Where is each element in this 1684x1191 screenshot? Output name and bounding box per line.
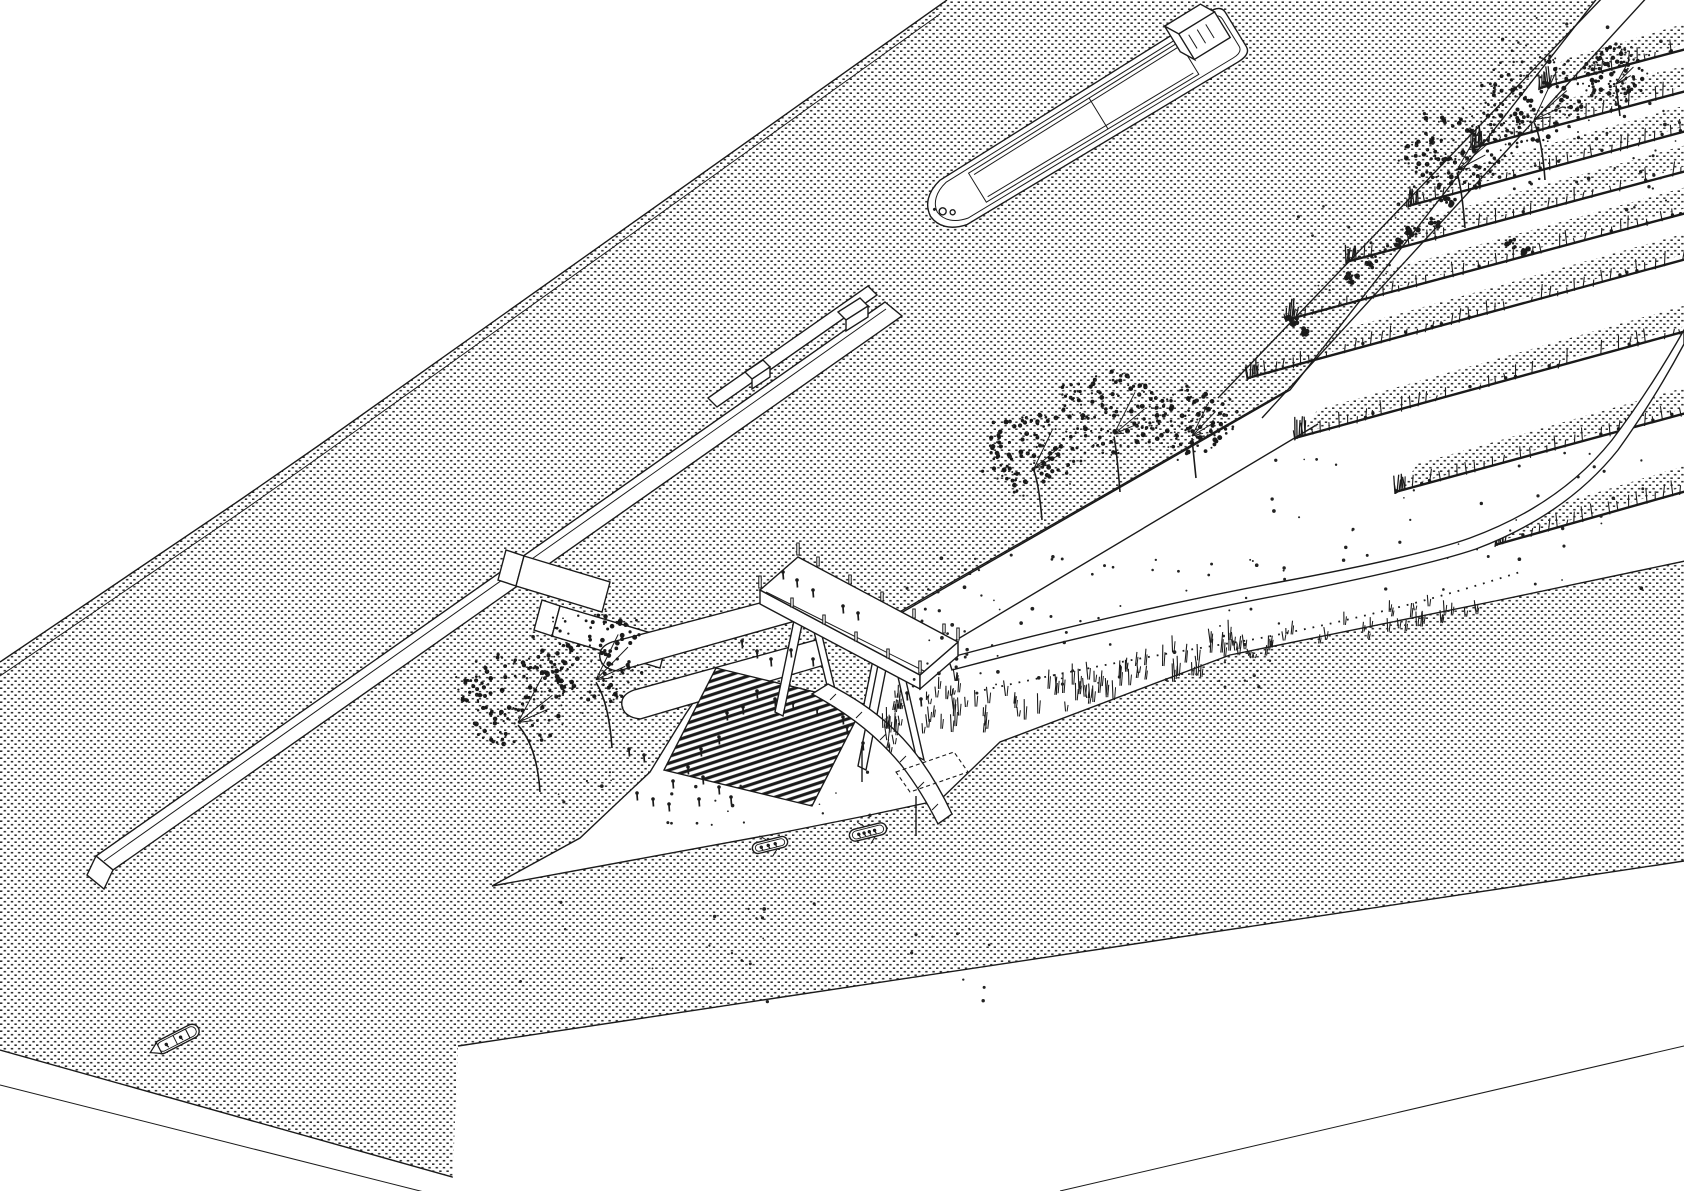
tree-canopy-dot <box>468 691 471 694</box>
tree-canopy-dot <box>1470 175 1472 177</box>
tree-canopy-dot <box>562 644 565 647</box>
tree-canopy-dot <box>1555 129 1558 132</box>
reed-end-clump <box>1354 246 1355 260</box>
tree-canopy-dot <box>560 666 564 670</box>
tree-canopy-dot <box>1424 132 1428 136</box>
reed-blade <box>1601 228 1602 236</box>
tree-canopy-dot <box>1189 425 1193 429</box>
reed-clump <box>1371 412 1374 415</box>
speck-dot <box>1652 154 1655 157</box>
tree-canopy-dot <box>1104 411 1107 414</box>
tree-canopy-dot <box>1483 139 1486 142</box>
platform-post <box>957 628 959 640</box>
tree-canopy-dot <box>1150 449 1152 451</box>
person-body <box>757 653 758 659</box>
tree-canopy-dot <box>1041 465 1044 468</box>
tree-canopy-dot <box>1489 170 1492 173</box>
grass-blade <box>1172 635 1173 652</box>
reed-end-clump <box>1355 246 1356 259</box>
tree-canopy-dot <box>1526 99 1530 103</box>
drawing-canvas <box>0 0 1684 1191</box>
tree-canopy-dot <box>1172 394 1174 396</box>
person-body <box>921 701 922 707</box>
speck-dot <box>1386 244 1389 247</box>
tree-canopy-dot <box>1207 434 1209 436</box>
tree-canopy-dot <box>1638 67 1641 70</box>
speck-dot <box>1458 543 1460 545</box>
tree-canopy-dot <box>1125 429 1130 434</box>
speck-dot <box>1384 248 1387 251</box>
tree-canopy-dot <box>1553 126 1555 128</box>
speck-dot <box>1632 78 1635 81</box>
tree-canopy-dot <box>540 705 544 709</box>
tree-canopy-dot <box>1214 439 1218 443</box>
tree-canopy-dot <box>628 641 632 645</box>
speck-dot <box>999 609 1001 611</box>
tree-canopy-dot <box>533 698 536 701</box>
tree-canopy-dot <box>1532 108 1536 112</box>
tree-canopy-dot <box>1101 442 1105 446</box>
tree-canopy-dot <box>1608 83 1610 85</box>
platform-post <box>943 624 945 633</box>
speck-dot <box>1592 85 1595 88</box>
platform-post <box>855 632 857 641</box>
speck-dot <box>1659 39 1663 43</box>
tree-canopy-dot <box>1221 402 1225 406</box>
speck-dot <box>963 585 967 589</box>
tree-canopy-dot <box>635 619 638 622</box>
tree-canopy-dot <box>1127 445 1130 448</box>
reed-clump <box>1627 343 1630 346</box>
speck-dot <box>983 986 986 989</box>
reed-blade <box>1539 524 1540 532</box>
tree-canopy-dot <box>999 464 1002 467</box>
reed-clump <box>1635 269 1638 272</box>
shrub-dot <box>1443 196 1448 201</box>
tree-canopy-dot <box>1519 123 1521 125</box>
tree-canopy-dot <box>503 720 505 722</box>
speck-dot <box>969 572 972 575</box>
tree-canopy-dot <box>548 719 551 722</box>
tree-canopy-dot <box>1048 433 1050 435</box>
person-head <box>686 765 690 769</box>
tree-canopy-dot <box>1122 373 1124 375</box>
tree-canopy-dot <box>1429 172 1433 176</box>
speck-dot <box>1657 72 1659 74</box>
tree-canopy-dot <box>628 667 630 669</box>
tree-canopy-dot <box>1067 414 1071 418</box>
tree-canopy-dot <box>1149 406 1151 408</box>
speck-dot <box>1228 609 1230 611</box>
tree-canopy-dot <box>1431 176 1434 179</box>
tree-canopy-dot <box>1493 123 1496 126</box>
speck-dot <box>868 814 871 817</box>
tree-canopy-dot <box>1212 410 1215 413</box>
person-head <box>701 775 705 779</box>
reed-blade <box>1567 288 1568 294</box>
tree-canopy-dot <box>1511 88 1514 91</box>
tree-canopy-dot <box>1615 59 1619 63</box>
tree-canopy-dot <box>1090 430 1092 432</box>
person-body <box>742 643 743 649</box>
speck-dot <box>1505 129 1509 133</box>
tree-canopy-dot <box>1177 459 1179 461</box>
tree-canopy-dot <box>1624 51 1626 53</box>
person-body <box>771 661 772 667</box>
tree-canopy-dot <box>1484 101 1486 103</box>
speck-dot <box>1588 119 1590 121</box>
person-head <box>811 588 815 592</box>
tree-canopy-dot <box>1136 435 1139 438</box>
tree-canopy-dot <box>1013 491 1016 494</box>
person-head <box>651 797 655 801</box>
tree-canopy-dot <box>1525 44 1527 46</box>
grass-blade <box>1197 644 1198 660</box>
speck-dot <box>1606 132 1609 135</box>
tree-canopy-dot <box>603 614 608 619</box>
reed-clump <box>1600 149 1603 152</box>
tree-canopy-dot <box>1059 444 1064 449</box>
tree-canopy-dot <box>1171 424 1174 427</box>
tree-canopy-dot <box>1529 120 1532 123</box>
reed-clump <box>1504 376 1507 379</box>
person-head <box>717 785 721 789</box>
tree-canopy-dot <box>509 719 511 721</box>
grass-blade <box>1464 607 1465 617</box>
tree-canopy-dot <box>1411 144 1413 146</box>
speck-dot <box>1010 554 1013 557</box>
speck-dot <box>1344 546 1347 549</box>
tree-canopy-dot <box>609 699 613 703</box>
speck-dot <box>1600 522 1602 524</box>
shrub-dot <box>1413 227 1416 230</box>
speck-dot <box>835 792 837 794</box>
tree-canopy-dot <box>1615 89 1619 93</box>
tree-canopy-dot <box>1061 408 1065 412</box>
tree-canopy-dot <box>1597 80 1600 83</box>
speck-dot <box>1563 452 1566 455</box>
person-body <box>793 705 794 711</box>
person-body <box>688 769 689 775</box>
tree-canopy-dot <box>1573 78 1575 80</box>
tree-canopy-dot <box>1136 418 1138 420</box>
tree-canopy-dot <box>1471 115 1473 117</box>
tree-canopy-dot <box>591 620 595 624</box>
speck-dot <box>743 821 745 823</box>
reed-clump <box>1440 322 1443 325</box>
tree-canopy-dot <box>998 430 1003 435</box>
reed-blade <box>1601 340 1602 354</box>
speck-dot <box>1385 273 1387 275</box>
speck-dot <box>1250 608 1253 611</box>
tree-canopy-dot <box>525 751 527 753</box>
tree-canopy-dot <box>1425 170 1428 173</box>
tree-canopy-dot <box>1111 441 1114 444</box>
tree-canopy-dot <box>563 685 566 688</box>
tree-canopy-dot <box>1179 443 1183 447</box>
speck-dot <box>1367 258 1369 260</box>
person-head <box>861 741 865 745</box>
tree-canopy-dot <box>489 712 493 716</box>
tree-canopy-dot <box>606 661 611 666</box>
shrub-dot <box>1433 221 1437 225</box>
tree-canopy-dot <box>1540 90 1544 94</box>
tree-canopy-dot <box>631 669 633 671</box>
speck-dot <box>1501 38 1504 41</box>
tree-canopy-dot <box>1151 427 1154 430</box>
tree-canopy-dot <box>992 421 996 425</box>
person-head <box>642 753 646 757</box>
platform-post <box>791 598 793 607</box>
speck-dot <box>1518 465 1521 468</box>
speck-dot <box>1347 226 1350 229</box>
tree-canopy-dot <box>1209 429 1213 433</box>
reed-clump <box>1428 479 1431 482</box>
tree-canopy-dot <box>1499 61 1502 64</box>
shrub-dot <box>1290 321 1295 326</box>
tree-canopy-dot <box>1453 160 1457 164</box>
tree-canopy-dot <box>1127 384 1129 386</box>
speck-dot <box>1218 680 1220 682</box>
speck-dot <box>912 685 915 688</box>
tree-canopy-dot <box>626 663 630 667</box>
tree-canopy-dot <box>1190 429 1194 433</box>
speck-dot <box>1051 555 1055 559</box>
reed-blade <box>1628 93 1629 106</box>
tree-canopy-dot <box>478 676 480 678</box>
tree-canopy-dot <box>1076 427 1079 430</box>
speck-dot <box>974 558 976 560</box>
grass-blade <box>1387 618 1388 632</box>
tree-canopy-dot <box>503 675 507 679</box>
tree-canopy-dot <box>1594 71 1597 74</box>
tree-canopy-dot <box>1491 129 1495 133</box>
tree-canopy-dot <box>1486 149 1489 152</box>
tree-canopy-dot <box>1459 117 1463 121</box>
tree-canopy-dot <box>1553 61 1555 63</box>
tree-canopy-dot <box>1523 133 1525 135</box>
tree-canopy-dot <box>522 675 525 678</box>
tree-canopy-dot <box>1487 104 1490 107</box>
tree-canopy-dot <box>1463 180 1466 183</box>
tree-canopy-dot <box>1056 468 1059 471</box>
tree-canopy-dot <box>1155 427 1157 429</box>
person-head <box>741 705 745 709</box>
reed-clump <box>1679 129 1682 132</box>
tree-canopy-dot <box>1490 153 1493 156</box>
tree-canopy-dot <box>1099 395 1104 400</box>
speck-dot <box>1253 674 1256 677</box>
tree-canopy-dot <box>512 707 514 709</box>
tree-canopy-dot <box>1588 85 1590 87</box>
tree-canopy-dot <box>1632 82 1635 85</box>
tree-canopy-dot <box>1577 136 1580 139</box>
speck-dot <box>708 945 710 947</box>
tree-canopy-dot <box>536 655 540 659</box>
speck-dot <box>713 915 716 918</box>
tree-canopy-dot <box>614 646 618 650</box>
tree-canopy-dot <box>575 656 580 661</box>
tree-canopy-dot <box>620 637 624 641</box>
tree-canopy-dot <box>1555 67 1558 70</box>
speck-dot <box>819 803 821 805</box>
speck-dot <box>1606 25 1610 29</box>
speck-dot <box>1224 685 1227 688</box>
tree-canopy-dot <box>1179 426 1181 428</box>
speck-dot <box>558 793 560 795</box>
tree-canopy-dot <box>1196 444 1199 447</box>
tree-canopy-dot <box>1210 447 1212 449</box>
tree-canopy-dot <box>475 675 478 678</box>
speck-dot <box>1358 256 1361 259</box>
tree-canopy-dot <box>482 685 486 689</box>
tree-canopy-dot <box>493 721 497 725</box>
tree-canopy-dot <box>551 634 554 637</box>
person-body <box>653 801 654 807</box>
tree-canopy-dot <box>496 653 499 656</box>
speck-dot <box>714 800 716 802</box>
tree-canopy-dot <box>1452 139 1454 141</box>
speck-dot <box>1278 622 1280 624</box>
tree-canopy-dot <box>1201 394 1205 398</box>
shrub-dot <box>1374 255 1377 258</box>
tree-canopy-dot <box>1080 404 1082 406</box>
shrub-dot <box>1368 262 1372 266</box>
tree-canopy-dot <box>1005 477 1009 481</box>
reed-blade <box>1383 285 1384 296</box>
reed-end-clump <box>1417 189 1418 203</box>
tree-canopy-dot <box>1472 148 1477 153</box>
speck-dot <box>1603 470 1606 473</box>
speck-dot <box>1282 566 1285 569</box>
tree-canopy-dot <box>556 714 561 719</box>
tree-canopy-dot <box>1493 83 1497 87</box>
speck-dot <box>761 916 764 919</box>
tree-canopy-dot <box>1069 435 1073 439</box>
speck-dot <box>1298 516 1300 518</box>
tree-canopy-dot <box>1190 396 1193 399</box>
tree-canopy-dot <box>1639 89 1642 92</box>
tree-canopy-dot <box>1188 430 1191 433</box>
tree-canopy-dot <box>1196 412 1201 417</box>
reed-blade <box>1655 52 1656 58</box>
tree-canopy-dot <box>1044 416 1047 419</box>
speck-dot <box>755 917 757 919</box>
reed-clump <box>1547 364 1550 367</box>
shrub-dot <box>1439 198 1443 202</box>
tree-canopy-dot <box>1180 413 1185 418</box>
speck-dot <box>1255 563 1259 567</box>
tree-canopy-dot <box>554 695 558 699</box>
tree-canopy-dot <box>1008 441 1011 444</box>
tree-canopy-dot <box>485 669 490 674</box>
tree-canopy-dot <box>1526 140 1528 142</box>
reed-clump <box>1430 325 1433 328</box>
tree-canopy-dot <box>588 690 591 693</box>
tree-canopy-dot <box>1046 465 1051 470</box>
speck-dot <box>1177 570 1180 573</box>
speck-dot <box>1612 496 1616 500</box>
person-body <box>699 801 700 807</box>
person-body <box>731 799 732 805</box>
tree-canopy-dot <box>521 660 526 665</box>
speck-dot <box>955 657 959 661</box>
tree-canopy-dot <box>1472 188 1474 190</box>
tree-canopy-dot <box>1093 416 1096 419</box>
tree-canopy-dot <box>1033 462 1035 464</box>
shrub-dot <box>1445 201 1448 204</box>
speck-dot <box>928 639 930 641</box>
tree-canopy-dot <box>1128 386 1133 391</box>
tree-canopy-dot <box>1492 93 1496 97</box>
speck-dot <box>1633 206 1636 209</box>
speck-dot <box>1614 102 1618 106</box>
tree-canopy-dot <box>1488 161 1491 164</box>
tree-canopy-dot <box>1137 383 1142 388</box>
tree-canopy-dot <box>618 619 623 624</box>
speck-dot <box>762 907 766 911</box>
tree-canopy-dot <box>1154 396 1158 400</box>
speck-dot <box>995 683 997 685</box>
tree-canopy-dot <box>992 458 995 461</box>
platform-post <box>881 592 883 601</box>
tree-canopy-dot <box>1190 420 1192 422</box>
tree-canopy-dot <box>1074 431 1077 434</box>
person-head <box>769 657 773 661</box>
platform-post <box>823 615 825 624</box>
tree-canopy-dot <box>514 722 516 724</box>
speck-dot <box>1155 559 1157 561</box>
shrub-dot <box>1405 230 1410 235</box>
speck-dot <box>1589 453 1591 455</box>
speck-dot <box>1091 573 1094 576</box>
speck-dot <box>1575 180 1578 183</box>
tree-canopy-dot <box>461 697 466 702</box>
reed-blade <box>1488 375 1489 387</box>
speck-dot <box>749 962 752 965</box>
speck-dot <box>1272 509 1276 513</box>
tree-canopy-dot <box>1559 98 1564 103</box>
speck-dot <box>1623 48 1626 51</box>
speck-dot <box>1395 217 1397 219</box>
speck-dot <box>996 670 1000 674</box>
tree-canopy-dot <box>558 694 561 697</box>
tree-canopy-dot <box>589 626 592 629</box>
tree-canopy-dot <box>1398 160 1400 162</box>
tree-canopy-dot <box>1608 45 1612 49</box>
speck-dot <box>1207 574 1210 577</box>
tree-canopy-dot <box>566 668 569 671</box>
tree-canopy-dot <box>1465 156 1467 158</box>
tree-canopy-dot <box>475 687 479 691</box>
tree-canopy-dot <box>1536 126 1539 129</box>
tree-canopy-dot <box>499 731 502 734</box>
tree-canopy-dot <box>1500 89 1504 93</box>
speck-dot <box>1509 529 1511 531</box>
tree-canopy-dot <box>1555 96 1557 98</box>
tree-canopy-dot <box>1217 435 1222 440</box>
speck-dot <box>1652 174 1655 177</box>
reed-clump <box>1679 212 1682 215</box>
tree-canopy-dot <box>1479 131 1481 133</box>
tree-canopy-dot <box>1618 46 1621 49</box>
tree-canopy-dot <box>1021 416 1023 418</box>
tree-canopy-dot <box>562 660 567 665</box>
reed-clump <box>1646 221 1649 224</box>
tree-canopy-dot <box>1544 59 1546 61</box>
speck-dot <box>988 944 991 947</box>
speck-dot <box>1413 489 1415 491</box>
